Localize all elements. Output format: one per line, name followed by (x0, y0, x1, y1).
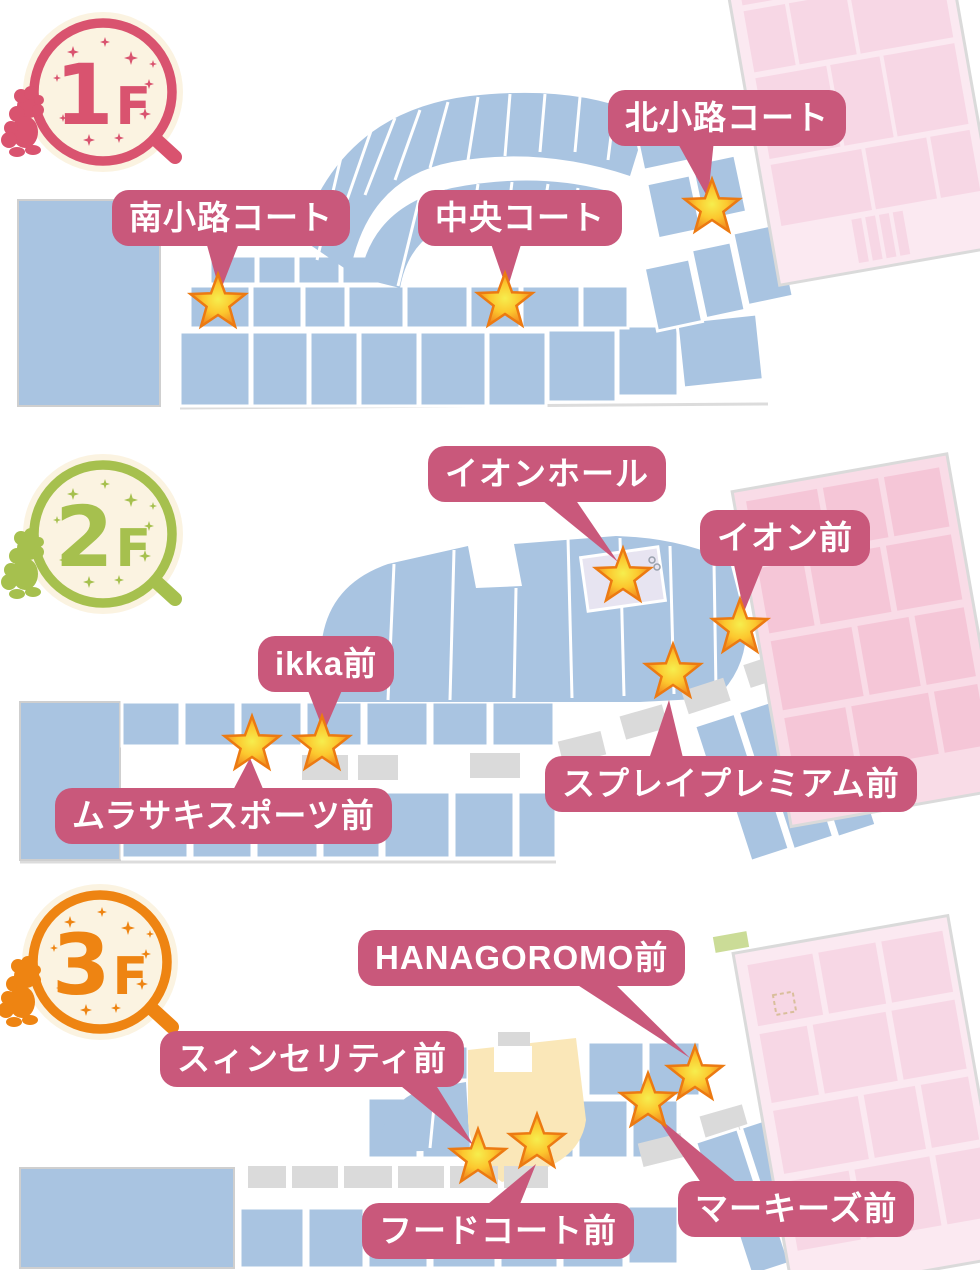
location-label-chuo-court: 中央コート (418, 190, 622, 246)
label-tail (205, 238, 241, 292)
label-tail (648, 700, 684, 762)
location-label-kitakoji-court: 北小路コート (608, 90, 846, 146)
label-tail (573, 982, 690, 1058)
label-tail (537, 496, 618, 562)
location-label-murasaki-sports-mae: ムラサキスポーツ前 (55, 788, 392, 844)
star-marker-icon (595, 548, 650, 600)
location-label-hanagoromo-mae: HANAGOROMO前 (358, 930, 685, 986)
star-marker-icon (450, 1129, 505, 1181)
star-marker-icon (645, 644, 700, 696)
location-label-splendid-premium-mae: スプレイプレミアム前 (545, 756, 917, 812)
label-tail (654, 1114, 742, 1187)
label-tail (396, 1082, 474, 1146)
location-label-marquees-mae: マーキーズ前 (678, 1181, 914, 1237)
location-label-sincerity-mae: スィンセリティ前 (160, 1031, 464, 1087)
location-label-minamikoji-court: 南小路コート (112, 190, 350, 246)
star-marker-icon (620, 1073, 675, 1125)
location-label-ikka-mae: ikka前 (258, 636, 394, 692)
location-label-food-court-mae: フードコート前 (362, 1203, 634, 1259)
floor-guide-page: 1F 2F (0, 0, 980, 1270)
star-marker-icon (509, 1114, 564, 1166)
location-label-aeon-mae: イオン前 (700, 510, 870, 566)
star-marker-icon (712, 599, 767, 651)
star-marker-icon (477, 273, 532, 325)
location-label-aeon-hall: イオンホール (428, 446, 666, 502)
star-marker-icon (684, 179, 739, 231)
star-marker-icon (667, 1046, 722, 1098)
star-marker-icon (294, 716, 349, 768)
star-marker-icon (190, 274, 245, 326)
star-marker-icon (224, 716, 279, 768)
